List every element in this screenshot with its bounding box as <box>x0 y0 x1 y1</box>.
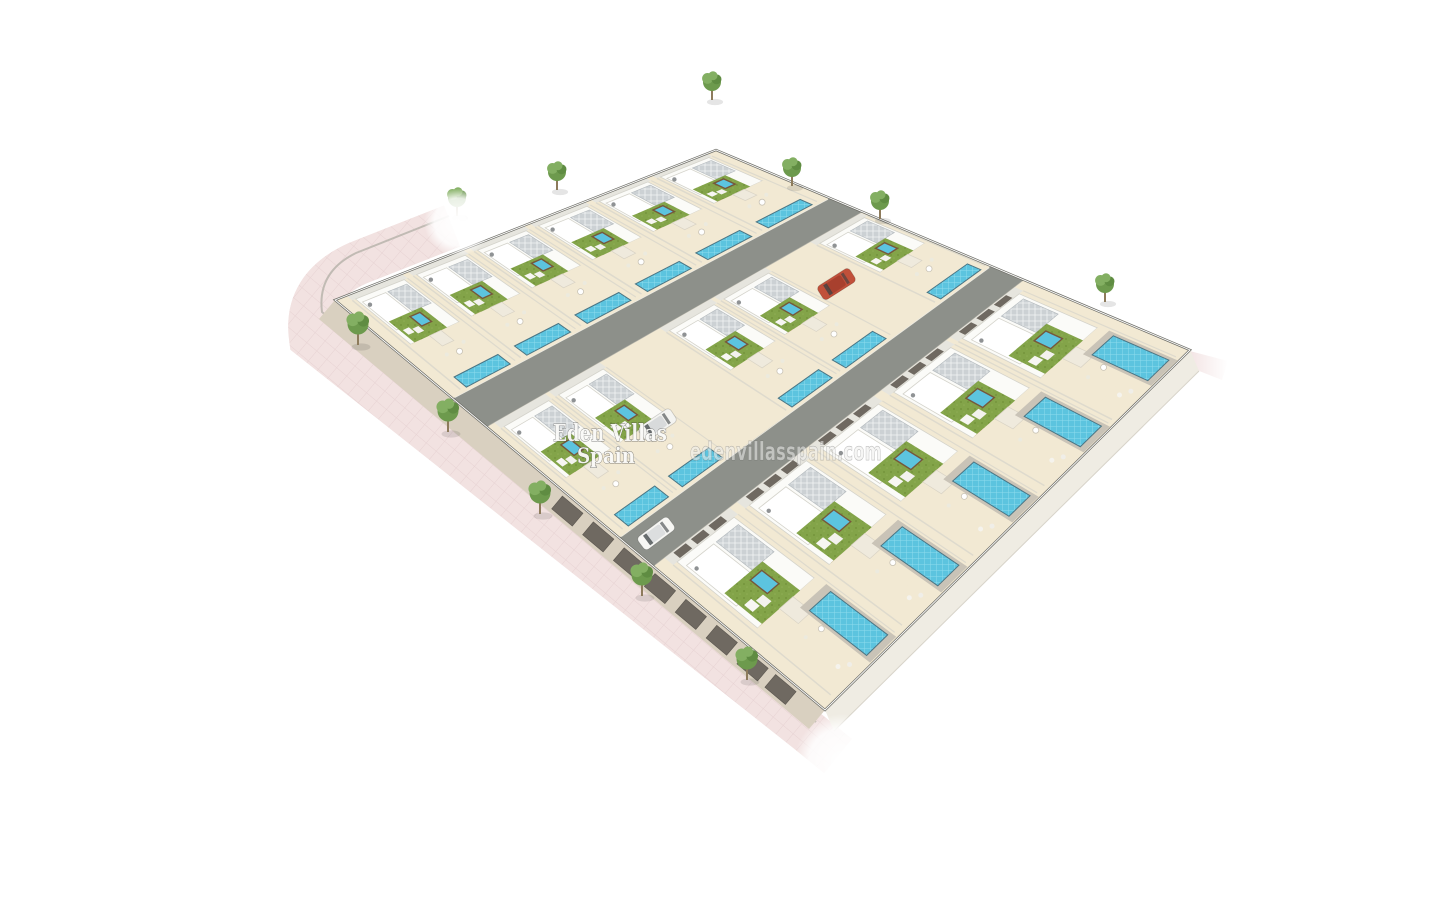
chair <box>522 310 526 314</box>
dining-table <box>578 289 584 295</box>
lounger <box>1049 458 1054 463</box>
dining-table <box>1101 364 1107 370</box>
dining-table <box>759 199 765 205</box>
chimney <box>611 202 615 206</box>
dining-table <box>667 444 673 450</box>
chair <box>764 193 768 197</box>
lounger <box>918 593 923 598</box>
tree-shadow <box>442 430 461 437</box>
lounger <box>907 595 912 600</box>
tree-canopy <box>354 311 365 322</box>
chair <box>804 635 808 639</box>
watermark-website: edenvillasspain.com <box>690 437 882 466</box>
chair <box>445 352 449 356</box>
tree-shadow <box>1100 301 1116 307</box>
chair <box>602 486 606 490</box>
chair <box>462 340 466 344</box>
dining-table <box>926 266 932 272</box>
dining-table <box>818 626 824 632</box>
tree-shadow <box>352 343 371 350</box>
lounger <box>1128 389 1133 394</box>
sidewalk-fade <box>424 188 492 256</box>
tree-canopy <box>536 480 547 491</box>
chimney <box>832 243 836 247</box>
chimney <box>911 393 915 397</box>
chair <box>747 204 751 208</box>
tree <box>1095 273 1116 307</box>
chair <box>780 359 784 363</box>
dining-table <box>961 493 967 499</box>
chimney <box>672 177 676 181</box>
chair <box>704 222 708 226</box>
lounger <box>990 524 995 529</box>
tree-shadow <box>787 185 803 191</box>
chair <box>566 293 570 297</box>
chimney <box>368 302 372 306</box>
render-stage: Eden Villas Spain edenvillasspain.com <box>0 0 1440 900</box>
tree-canopy <box>877 190 886 199</box>
tree-shadow <box>636 594 655 601</box>
villa-development-aerial-render: Eden Villas Spain edenvillasspain.com <box>0 0 1440 900</box>
tree-canopy <box>743 646 754 657</box>
watermark-title-line2: Spain <box>577 443 635 468</box>
chair <box>835 322 839 326</box>
lounger <box>1061 454 1066 459</box>
dining-table <box>638 259 644 265</box>
chair <box>766 374 770 378</box>
chair <box>1086 375 1090 379</box>
chimney <box>517 430 521 434</box>
chimney <box>694 566 698 570</box>
chimney <box>571 398 575 402</box>
chair <box>947 503 951 507</box>
dining-table <box>699 229 705 235</box>
chimney <box>429 277 433 281</box>
dining-table <box>1033 427 1039 433</box>
tree-shadow <box>552 189 568 195</box>
sidewalk-fade <box>794 714 890 810</box>
dining-table <box>890 560 896 566</box>
chair <box>505 323 509 327</box>
lounger <box>836 664 841 669</box>
chair <box>915 272 919 276</box>
tree-shadow <box>875 218 891 224</box>
lounger <box>847 662 852 667</box>
chimney <box>490 252 494 256</box>
chair <box>875 569 879 573</box>
chair <box>626 264 630 268</box>
dining-table <box>777 368 783 374</box>
chair <box>820 337 824 341</box>
dining-table <box>517 318 523 324</box>
chair <box>656 449 660 453</box>
chair <box>583 281 587 285</box>
tree <box>547 161 568 195</box>
chair <box>616 470 620 474</box>
chimney <box>767 509 771 513</box>
chimney <box>682 332 686 336</box>
tree-shadow <box>741 678 760 685</box>
chair <box>930 258 934 262</box>
chimney <box>550 227 554 231</box>
tree-canopy <box>789 157 798 166</box>
chair <box>1018 438 1022 442</box>
tree-canopy <box>709 71 718 80</box>
lounger <box>1117 393 1122 398</box>
tree-canopy <box>638 562 649 573</box>
tree <box>702 71 723 105</box>
tree-canopy <box>1102 273 1111 282</box>
chair <box>687 234 691 238</box>
chair <box>670 434 674 438</box>
lounger <box>978 527 983 532</box>
tree-shadow <box>534 512 553 519</box>
tree-canopy <box>444 398 455 409</box>
dining-table <box>457 348 463 354</box>
tree-canopy <box>554 161 563 170</box>
chair <box>643 252 647 256</box>
tree-shadow <box>707 99 723 105</box>
chimney <box>979 338 983 342</box>
chimney <box>737 300 741 304</box>
dining-table <box>831 331 837 337</box>
dining-table <box>613 481 619 487</box>
